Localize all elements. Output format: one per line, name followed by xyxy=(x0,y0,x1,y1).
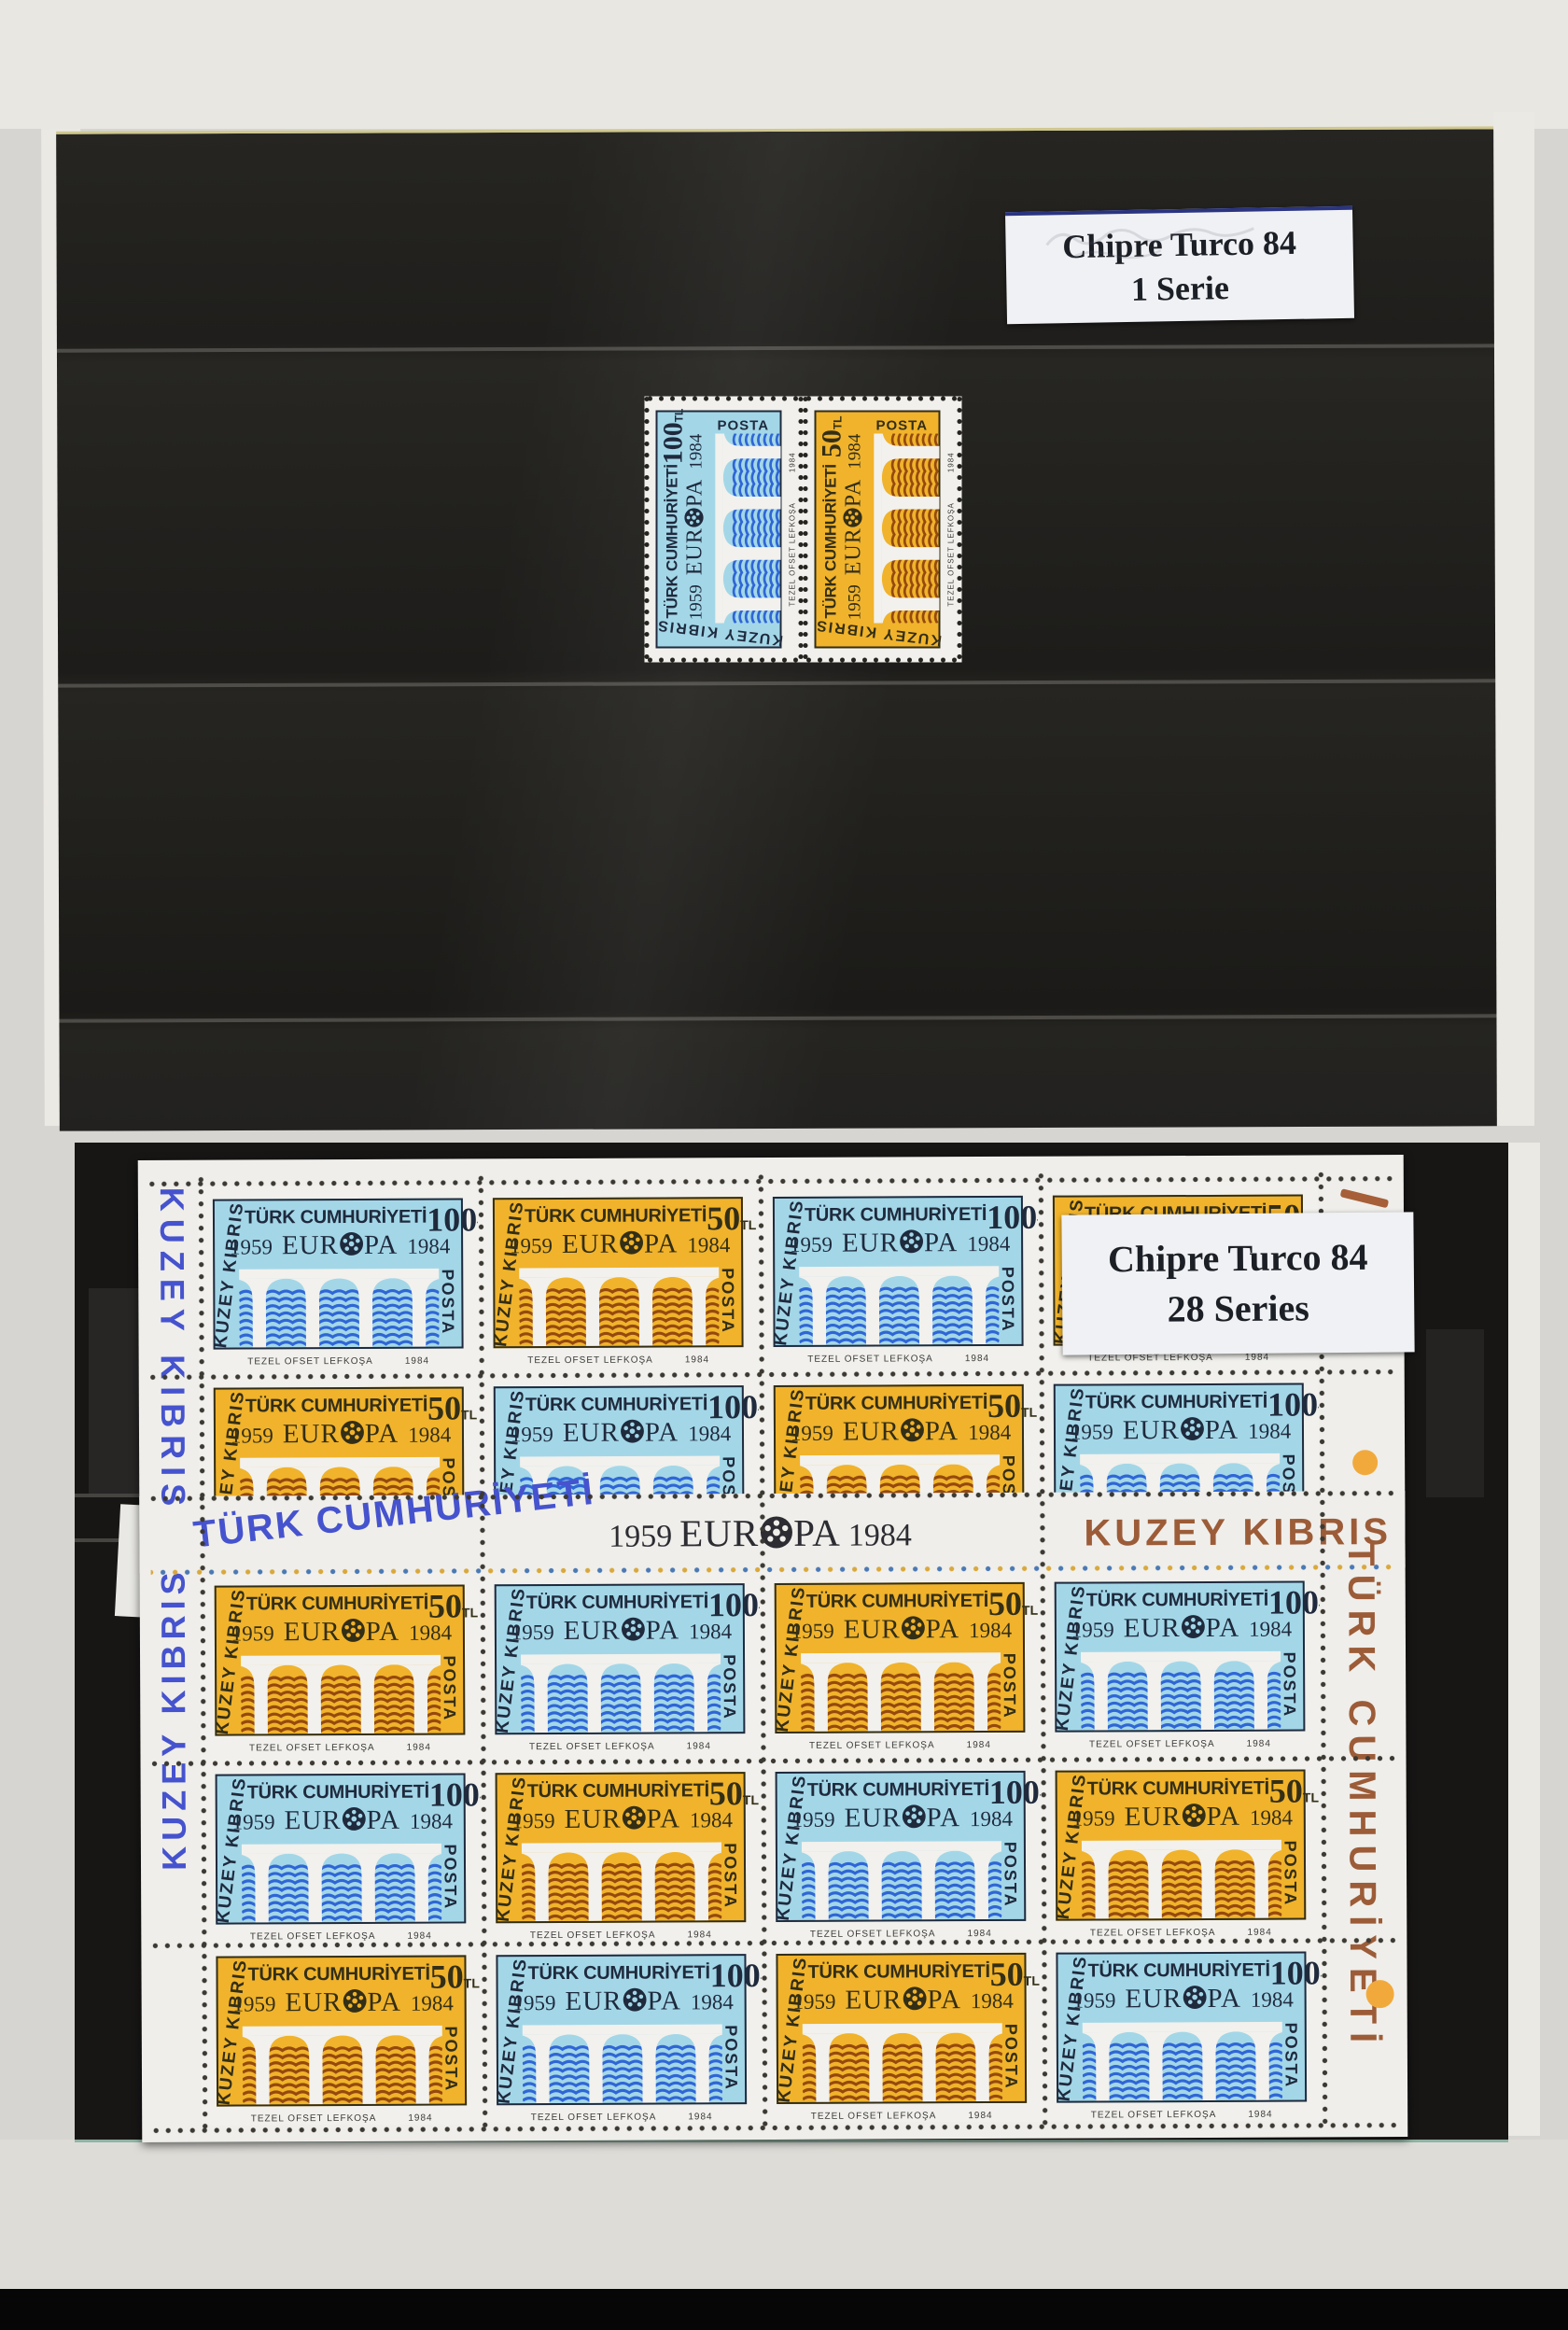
postage-stamp-orange: KUZEY KIBRISTÜRK CUMHURİYETİ50TL1959EURP… xyxy=(201,1942,482,2125)
sheet-stamp-cell: KUZEY KIBRISTÜRK CUMHURİYETİ50TL1959EURP… xyxy=(200,1571,481,1761)
stamp-europa-line: 1959EURPA1984 xyxy=(1084,1415,1278,1446)
bridge-water-art xyxy=(241,1647,441,1734)
stamp-year-left: 1959 xyxy=(511,1621,554,1645)
stamp-year-left: 1959 xyxy=(512,1809,555,1833)
stamp-europa-word: EURPA xyxy=(565,1804,681,1835)
stamp-europa-word: EURPA xyxy=(283,1419,399,1451)
bridge-water-art xyxy=(801,1644,1001,1732)
stamp-artwork xyxy=(1082,1832,1281,1919)
collection-label-top: Chipre Turco 84 1 Serie xyxy=(1005,206,1354,324)
stamp-year-right: 1984 xyxy=(967,1232,1010,1256)
imprint-year: 1984 xyxy=(687,1741,711,1751)
stamp-europa-word: EURPA xyxy=(845,1803,961,1834)
stamp-europa-line: 1959EURPA1984 xyxy=(523,1228,717,1259)
cept-emblem-icon xyxy=(339,1231,364,1256)
stamp-posta-text: POSTA xyxy=(995,1257,1019,1341)
sheet-stamp-cell: KUZEY KIBRISTÜRK CUMHURİYETİ50TL1959EURP… xyxy=(201,1942,482,2125)
stamp-panel: KUZEY KIBRISTÜRK CUMHURİYETİ100TL1959EUR… xyxy=(1055,1581,1306,1733)
stamp-year-right: 1984 xyxy=(408,1424,451,1448)
cept-emblem-icon xyxy=(342,1988,367,2014)
stamp-country-text: TÜRK CUMHURİYETİ xyxy=(245,1393,427,1418)
gutter-year-left: 1959 xyxy=(609,1519,672,1554)
stamp-year-right: 1984 xyxy=(846,434,866,470)
stamp-panel: KUZEY KIBRISTÜRK CUMHURİYETİ50TL1959EURP… xyxy=(776,1953,1027,2104)
stamp-imprint: TEZEL OFSET LEFKOŞA1984 xyxy=(947,397,956,663)
stamp-unit: TL xyxy=(1022,1603,1038,1618)
bridge-water-art xyxy=(522,1833,721,1921)
stamp-country-text: TÜRK CUMHURİYETİ xyxy=(527,1777,709,1803)
bridge-water-art xyxy=(867,433,940,623)
label-line2: 1 Serie xyxy=(1131,266,1230,312)
stamp-title-line: TÜRK CUMHURİYETİ100TL xyxy=(805,1201,1017,1230)
left-margin-inscription-lower: KUZEY KIBRIS xyxy=(151,1582,197,1855)
stamp-unit: TL xyxy=(462,1606,478,1621)
stamp-country-text: TÜRK CUMHURİYETİ xyxy=(525,1202,707,1228)
perforation-edge xyxy=(957,397,963,663)
stamp-panel: KUZEY KIBRISTÜRK CUMHURİYETİ50TL1959EURP… xyxy=(493,1197,744,1348)
stamp-country-text: TÜRK CUMHURİYETİ xyxy=(246,1591,428,1616)
stamp-year-left: 1959 xyxy=(792,1990,835,2014)
bridge-water-art xyxy=(708,433,781,623)
postage-stamp-blue: KUZEY KIBRISTÜRK CUMHURİYETİ100TL1959EUR… xyxy=(1040,1567,1321,1757)
imprint-printer: TEZEL OFSET LEFKOŞA xyxy=(249,1743,375,1754)
stamp-country-text: TÜRK CUMHURİYETİ xyxy=(1086,1587,1268,1612)
postage-stamp-blue: KUZEY KIBRISTÜRK CUMHURİYETİ100TL1959EUR… xyxy=(645,397,804,663)
stamp-europa-word: EURPA xyxy=(842,1228,959,1259)
stamp-country-text: TÜRK CUMHURİYETİ xyxy=(1085,1389,1267,1414)
stamp-europa-line: 1959EURPA1984 xyxy=(803,1228,997,1258)
stamp-title-line: TÜRK CUMHURİYETİ50TL xyxy=(806,1588,1019,1617)
stamp-europa-word: EURPA xyxy=(843,1416,959,1448)
stamp-europa-word: EURPA xyxy=(1125,1984,1241,2015)
stamp-title-line: TÜRK CUMHURİYETİ50TL xyxy=(245,1392,458,1421)
perforation-edge xyxy=(803,397,809,663)
stamp-europa-word: EURPA xyxy=(284,1617,400,1649)
bridge-water-art xyxy=(521,1645,721,1733)
sheet-stamp-cell: KUZEY KIBRISTÜRK CUMHURİYETİ50TL1959EURP… xyxy=(481,1759,762,1942)
stamp-year-right: 1984 xyxy=(687,434,707,470)
color-control-dot xyxy=(1366,1980,1394,2008)
bridge-water-art xyxy=(523,2015,722,2103)
bridge-water-art xyxy=(242,1835,441,1923)
stamp-panel: KUZEY KIBRISTÜRK CUMHURİYETİ100TL1959EUR… xyxy=(213,1198,464,1349)
stamp-imprint: TEZEL OFSET LEFKOŞA1984 xyxy=(480,1741,760,1752)
postage-stamp-blue: KUZEY KIBRISTÜRK CUMHURİYETİ100TL1959EUR… xyxy=(201,1760,482,1943)
stamp-title-line: TÜRK CUMHURİYETİ50TL xyxy=(527,1777,740,1806)
stamp-posta-text: POSTA xyxy=(718,1833,742,1917)
stamp-title-line: TÜRK CUMHURİYETİ100TL xyxy=(1085,1389,1298,1418)
stamp-country-text: TÜRK CUMHURİYETİ xyxy=(1087,1958,1269,1983)
postage-stamp-orange: KUZEY KIBRISTÜRK CUMHURİYETİ50TL1959EURP… xyxy=(478,1184,759,1373)
stamp-year-right: 1984 xyxy=(968,1421,1011,1445)
stamp-country-text: TÜRK CUMHURİYETİ xyxy=(805,1390,987,1415)
postage-stamp-blue: KUZEY KIBRISTÜRK CUMHURİYETİ100TL1959EUR… xyxy=(480,1570,761,1760)
stamp-year-right: 1984 xyxy=(690,1808,733,1832)
stamp-title-line: TÜRK CUMHURİYETİ100TL xyxy=(527,1959,740,1988)
postage-stamp-blue: KUZEY KIBRISTÜRK CUMHURİYETİ100TL1959EUR… xyxy=(1041,1938,1322,2121)
stamp-posta-text: POSTA xyxy=(719,2015,743,2099)
stamp-europa-word: EURPA xyxy=(285,1987,401,2019)
stamp-year-left: 1959 xyxy=(791,1620,834,1644)
stamp-europa-line: 1959EURPA1984 xyxy=(804,1416,998,1447)
stamp-year-left: 1959 xyxy=(231,1621,274,1646)
stamp-title-line: TÜRK CUMHURİYETİ100TL xyxy=(245,1203,457,1232)
stamp-europa-line: 1959EURPA1984 xyxy=(683,435,708,620)
stamp-imprint: TEZEL OFSET LEFKOŞA1984 xyxy=(762,2111,1042,2122)
stamp-year-left: 1959 xyxy=(687,584,707,620)
imprint-printer: TEZEL OFSET LEFKOŞA xyxy=(1090,1928,1216,1939)
stamp-country-text: TÜRK CUMHURİYETİ xyxy=(247,1961,429,1986)
stamp-posta-text: POSTA xyxy=(717,1645,741,1729)
bridge-water-art xyxy=(799,1257,999,1345)
stamp-year-left: 1959 xyxy=(1072,1988,1115,2013)
stamp-posta-text: POSTA xyxy=(439,2016,463,2100)
stamp-europa-line: 1959EURPA1984 xyxy=(524,1417,718,1448)
imprint-printer: TEZEL OFSET LEFKOŞA xyxy=(250,1931,376,1943)
stamp-panel: KUZEY KIBRISTÜRK CUMHURİYETİ50TL1959EURP… xyxy=(1056,1770,1307,1921)
stamp-panel: KUZEY KIBRISTÜRK CUMHURİYETİ100TL1959EUR… xyxy=(773,1196,1024,1347)
sheet-stamp-cell: KUZEY KIBRISTÜRK CUMHURİYETİ50TL1959EURP… xyxy=(478,1184,759,1373)
cept-emblem-icon xyxy=(902,1804,927,1829)
sheet-stamp-cell: KUZEY KIBRISTÜRK CUMHURİYETİ100TL1959EUR… xyxy=(758,1183,1039,1372)
bridge-water-art xyxy=(1082,1832,1281,1919)
sheet-stamp-cell: KUZEY KIBRISTÜRK CUMHURİYETİ50TL1959EURP… xyxy=(760,1569,1041,1759)
stamp-europa-line: 1959EURPA1984 xyxy=(245,1617,439,1648)
stamp-imprint: TEZEL OFSET LEFKOŞA1984 xyxy=(199,1355,479,1367)
sheet-stamp-cell: KUZEY KIBRISTÜRK CUMHURİYETİ50TL1959EURP… xyxy=(1041,1756,1322,1939)
stamp-year-left: 1959 xyxy=(512,1991,555,2015)
stamp-posta-text: POSTA xyxy=(708,414,779,438)
sheet-stamp-cell: KUZEY KIBRISTÜRK CUMHURİYETİ100TL1959EUR… xyxy=(761,1758,1042,1941)
stamp-posta-text: POSTA xyxy=(715,1258,739,1342)
label-line1: Chipre Turco 84 xyxy=(1108,1232,1368,1284)
cept-emblem-icon xyxy=(902,1986,927,2011)
imprint-printer: TEZEL OFSET LEFKOŞA xyxy=(811,2111,937,2122)
pocket-reflection xyxy=(89,1288,140,1494)
stamp-year-left: 1959 xyxy=(1071,1618,1114,1642)
stamp-posta-text: POSTA xyxy=(437,1646,461,1730)
gutter-year-right: 1984 xyxy=(848,1518,912,1553)
stamp-europa-word: EURPA xyxy=(563,1417,679,1449)
stamp-imprint: TEZEL OFSET LEFKOŞA1984 xyxy=(759,1354,1039,1365)
imprint-printer: TEZEL OFSET LEFKOŞA xyxy=(947,502,956,606)
bridge-water-art xyxy=(803,2014,1002,2102)
sheet-gutter: TÜRK CUMHURİYETİ1959EURPA1984KUZEY KIBRI… xyxy=(139,1491,1405,1573)
stamp-artwork xyxy=(239,1260,439,1348)
perforation-edge xyxy=(645,396,804,402)
stamp-panel: KUZEY KIBRISTÜRK CUMHURİYETİ50TL1959EURP… xyxy=(496,1772,747,1923)
postage-stamp-orange: KUZEY KIBRISTÜRK CUMHURİYETİ50TL1959EURP… xyxy=(761,1940,1042,2123)
cept-emblem-icon xyxy=(1182,1985,1207,2010)
stamp-country-text: TÜRK CUMHURİYETİ xyxy=(819,464,841,618)
postage-stamp-orange: KUZEY KIBRISTÜRK CUMHURİYETİ50TL1959EURP… xyxy=(481,1759,762,1942)
corner-registration-mark xyxy=(1340,1188,1390,1208)
stamp-country-text: TÜRK CUMHURİYETİ xyxy=(527,1959,709,1985)
cept-emblem-icon xyxy=(340,1420,365,1445)
stamp-year-left: 1959 xyxy=(232,1992,275,2016)
stamp-posta-text: POSTA xyxy=(867,414,938,438)
imprint-year: 1984 xyxy=(1248,2110,1272,2120)
stamp-europa-word: EURPA xyxy=(282,1230,399,1262)
stamp-panel: KUZEY KIBRISTÜRK CUMHURİYETİ100TL1959EUR… xyxy=(496,1954,747,2105)
stamp-imprint: TEZEL OFSET LEFKOŞA1984 xyxy=(482,2112,762,2123)
stamp-year-right: 1984 xyxy=(687,1233,730,1257)
stamp-title-line: TÜRK CUMHURİYETİ100TL xyxy=(661,416,684,619)
sheet-stamp-cell: KUZEY KIBRISTÜRK CUMHURİYETİ100TL1959EUR… xyxy=(198,1185,479,1374)
stamp-posta-text: POSTA xyxy=(997,1644,1021,1728)
stamp-artwork xyxy=(803,2014,1002,2102)
cept-emblem-icon xyxy=(1181,1614,1206,1639)
stamp-unit: TL xyxy=(743,1792,759,1807)
stamp-imprint: TEZEL OFSET LEFKOŞA1984 xyxy=(1042,2109,1322,2120)
imprint-year: 1984 xyxy=(789,452,797,472)
backdrop-bottom-band xyxy=(0,2140,1568,2289)
postage-stamp-blue: KUZEY KIBRISTÜRK CUMHURİYETİ100TL1959EUR… xyxy=(198,1185,479,1374)
sheet-stamp-cell: KUZEY KIBRISTÜRK CUMHURİYETİ50TL1959EURP… xyxy=(761,1940,1042,2123)
stamp-unit: TL xyxy=(740,1217,756,1232)
cept-emblem-icon xyxy=(684,507,705,527)
stamp-unit: TL xyxy=(461,1408,477,1423)
stamp-year-left: 1959 xyxy=(791,1422,833,1446)
sheet-stamp-cell: KUZEY KIBRISTÜRK CUMHURİYETİ100TL1959EUR… xyxy=(1041,1938,1322,2121)
stamp-europa-line: 1959EURPA1984 xyxy=(245,1805,440,1836)
imprint-printer: TEZEL OFSET LEFKOŞA xyxy=(789,502,797,606)
collection-label-bottom: Chipre Turco 84 28 Series xyxy=(1061,1212,1414,1354)
perforation-edge xyxy=(804,657,962,664)
stamp-imprint: TEZEL OFSET LEFKOŞA1984 xyxy=(1040,1738,1320,1749)
perforation-edge xyxy=(645,657,804,664)
stamp-year-left: 1959 xyxy=(1072,1806,1115,1831)
color-control-dot xyxy=(1352,1450,1378,1475)
stamp-europa-line: 1959EURPA1984 xyxy=(1086,1984,1281,2014)
stamp-title-line: TÜRK CUMHURİYETİ50TL xyxy=(807,1958,1020,1987)
stamp-title-line: TÜRK CUMHURİYETİ100TL xyxy=(1086,1587,1299,1616)
stamp-artwork xyxy=(799,1257,999,1345)
stamp-europa-word: EURPA xyxy=(562,1228,679,1260)
stamp-imprint: TEZEL OFSET LEFKOŞA1984 xyxy=(760,1740,1040,1751)
stamp-europa-line: 1959EURPA1984 xyxy=(525,1804,720,1834)
cept-emblem-icon xyxy=(622,1987,647,2013)
stamp-artwork xyxy=(801,1644,1001,1732)
imprint-printer: TEZEL OFSET LEFKOŞA xyxy=(531,2112,657,2124)
stamp-panel: KUZEY KIBRISTÜRK CUMHURİYETİ100TL1959EUR… xyxy=(495,1583,746,1734)
imprint-printer: TEZEL OFSET LEFKOŞA xyxy=(1091,2110,1217,2121)
stamp-imprint: TEZEL OFSET LEFKOŞA1984 xyxy=(789,397,797,663)
imprint-printer: TEZEL OFSET LEFKOŞA xyxy=(809,1740,935,1751)
stamp-artwork xyxy=(242,1835,441,1923)
bridge-water-art xyxy=(1083,2014,1282,2101)
bridge-water-art xyxy=(243,2017,442,2105)
postage-stamp-blue: KUZEY KIBRISTÜRK CUMHURİYETİ100TL1959EUR… xyxy=(758,1183,1039,1372)
stamp-year-right: 1984 xyxy=(689,1620,732,1644)
stamp-year-right: 1984 xyxy=(688,1422,731,1446)
stamp-year-right: 1984 xyxy=(1249,1618,1292,1642)
stamp-europa-line: 1959EURPA1984 xyxy=(1085,1802,1280,1832)
postage-stamp-blue: KUZEY KIBRISTÜRK CUMHURİYETİ100TL1959EUR… xyxy=(481,1941,762,2124)
stamp-year-right: 1984 xyxy=(969,1619,1012,1643)
stamp-posta-text: POSTA xyxy=(1278,1832,1302,1916)
stamp-posta-text: POSTA xyxy=(1277,1643,1301,1727)
stamp-country-text: TÜRK CUMHURİYETİ xyxy=(525,1391,707,1416)
stamp-title-line: TÜRK CUMHURİYETİ50TL xyxy=(246,1590,459,1619)
stamp-europa-line: 1959EURPA1984 xyxy=(244,1419,438,1450)
stamp-panel: KUZEY KIBRISTÜRK CUMHURİYETİ50TL1959EURP… xyxy=(216,1955,467,2106)
stamp-europa-line: 1959EURPA1984 xyxy=(806,1985,1001,2015)
sheet-stamp-cell: KUZEY KIBRISTÜRK CUMHURİYETİ100TL1959EUR… xyxy=(481,1941,762,2124)
stamp-europa-word: EURPA xyxy=(1125,1802,1241,1833)
stamp-imprint: TEZEL OFSET LEFKOŞA1984 xyxy=(479,1354,759,1366)
pocket-seam xyxy=(75,1494,140,1497)
cept-emblem-icon xyxy=(900,1417,925,1442)
stamp-artwork xyxy=(243,2017,442,2105)
imprint-printer: TEZEL OFSET LEFKOŞA xyxy=(247,1356,373,1368)
imprint-printer: TEZEL OFSET LEFKOŞA xyxy=(251,2113,377,2125)
imprint-year: 1984 xyxy=(968,2111,992,2121)
stamp-europa-line: 1959EURPA1984 xyxy=(525,1615,719,1646)
stamp-artwork xyxy=(708,434,781,624)
stamp-europa-line: 1959EURPA1984 xyxy=(243,1230,437,1261)
imprint-year: 1984 xyxy=(965,1354,989,1364)
photo-canvas: KUZEY KIBRISTÜRK CUMHURİYETİ100TL1959EUR… xyxy=(0,0,1568,2330)
stamp-artwork xyxy=(867,434,940,624)
imprint-printer: TEZEL OFSET LEFKOŞA xyxy=(530,1930,656,1942)
stamp-year-left: 1959 xyxy=(231,1424,273,1448)
imprint-year: 1984 xyxy=(407,1931,431,1942)
stamp-unit: TL xyxy=(831,416,844,430)
stamp-year-left: 1959 xyxy=(230,1235,273,1259)
stamp-title-line: TÜRK CUMHURİYETİ50TL xyxy=(247,1960,460,1989)
cept-emblem-icon xyxy=(619,1230,644,1256)
stamp-unit: TL xyxy=(672,409,685,423)
stamp-unit: TL xyxy=(1021,1405,1037,1420)
imprint-year: 1984 xyxy=(687,1930,711,1940)
stamp-artwork xyxy=(241,1647,441,1734)
stamp-year-right: 1984 xyxy=(1248,1420,1291,1444)
stamp-imprint: TEZEL OFSET LEFKOŞA1984 xyxy=(200,1742,480,1753)
stamp-unit: TL xyxy=(464,1976,480,1991)
imprint-year: 1984 xyxy=(405,1356,429,1367)
stamp-year-right: 1984 xyxy=(411,1991,454,2015)
stamp-artwork xyxy=(523,2015,722,2103)
stamp-europa-word: EURPA xyxy=(564,1615,680,1647)
stamp-europa-line: 1959EURPA1984 xyxy=(246,1987,441,2018)
album-page-edge-right-top xyxy=(1493,112,1534,1126)
stamp-panel: KUZEY KIBRISTÜRK CUMHURİYETİ50TL1959EURP… xyxy=(215,1584,466,1735)
stamp-year-right: 1984 xyxy=(1251,1988,1294,2013)
imprint-printer: TEZEL OFSET LEFKOŞA xyxy=(807,1354,933,1365)
perforation-edge xyxy=(644,397,651,663)
stamp-europa-word: EURPA xyxy=(683,479,708,575)
stamp-panel: KUZEY KIBRISTÜRK CUMHURİYETİ100TL1959EUR… xyxy=(1056,1952,1307,2103)
stamp-title-line: TÜRK CUMHURİYETİ50TL xyxy=(805,1390,1018,1419)
postage-stamp-orange: KUZEY KIBRISTÜRK CUMHURİYETİ50TL1959EURP… xyxy=(1041,1756,1322,1939)
photo-black-bar xyxy=(0,2289,1568,2330)
stamp-europa-word: EURPA xyxy=(565,1986,681,2017)
imprint-year: 1984 xyxy=(967,1740,991,1750)
stamp-country-text: TÜRK CUMHURİYETİ xyxy=(245,1204,427,1229)
imprint-printer: TEZEL OFSET LEFKOŞA xyxy=(1089,1739,1215,1750)
stamp-europa-word: EURPA xyxy=(285,1805,401,1837)
stamp-title-line: TÜRK CUMHURİYETİ50TL xyxy=(525,1202,737,1231)
stamp-year-left: 1959 xyxy=(510,1234,553,1258)
stamp-panel: KUZEY KIBRISTÜRK CUMHURİYETİ100TL1959EUR… xyxy=(216,1773,467,1924)
cept-emblem-icon xyxy=(901,1615,926,1640)
postage-stamp-blue: KUZEY KIBRISTÜRK CUMHURİYETİ100TL1959EUR… xyxy=(761,1758,1042,1941)
stamp-panel: KUZEY KIBRISTÜRK CUMHURİYETİ50TL1959EURP… xyxy=(815,411,941,649)
stamp-country-text: TÜRK CUMHURİYETİ xyxy=(805,1201,987,1227)
cept-emblem-icon xyxy=(622,1805,647,1831)
stamp-europa-word: EURPA xyxy=(1124,1613,1240,1645)
stamp-artwork xyxy=(1083,2014,1282,2101)
label-line2: 28 Series xyxy=(1167,1283,1309,1334)
sheet-stamp-cell: KUZEY KIBRISTÜRK CUMHURİYETİ100TL1959EUR… xyxy=(480,1570,761,1760)
stamp-country-text: TÜRK CUMHURİYETİ xyxy=(807,1776,989,1802)
bridge-water-art xyxy=(239,1260,439,1348)
stamp-title-line: TÜRK CUMHURİYETİ50TL xyxy=(1087,1776,1300,1804)
stamp-pair: KUZEY KIBRISTÜRK CUMHURİYETİ100TL1959EUR… xyxy=(645,397,962,663)
imprint-year: 1984 xyxy=(407,1743,431,1753)
stamp-year-right: 1984 xyxy=(1250,1806,1293,1831)
stamp-year-right: 1984 xyxy=(691,1990,734,2014)
stamp-panel: KUZEY KIBRISTÜRK CUMHURİYETİ100TL1959EUR… xyxy=(776,1771,1027,1922)
stamp-year-left: 1959 xyxy=(792,1808,835,1832)
imprint-printer: TEZEL OFSET LEFKOŞA xyxy=(527,1355,653,1367)
cept-emblem-icon xyxy=(341,1618,366,1643)
cept-emblem-icon xyxy=(1182,1803,1207,1828)
label-line1: Chipre Turco 84 xyxy=(1062,221,1297,269)
imprint-year: 1984 xyxy=(947,452,956,472)
stamp-posta-text: POSTA xyxy=(1279,2014,1303,2098)
stamp-year-right: 1984 xyxy=(407,1235,450,1259)
bridge-water-art xyxy=(1081,1643,1281,1731)
bridge-water-art xyxy=(802,1832,1001,1920)
stamp-posta-text: POSTA xyxy=(999,2014,1023,2098)
stamp-europa-line: 1959EURPA1984 xyxy=(805,1803,1000,1833)
stamp-europa-word: EURPA xyxy=(845,1985,961,2016)
stamp-posta-text: POSTA xyxy=(438,1834,462,1918)
stamp-posta-text: POSTA xyxy=(998,1832,1022,1916)
stamp-europa-line: 1959EURPA1984 xyxy=(526,1986,721,2016)
cept-emblem-icon xyxy=(342,1806,367,1832)
stamp-posta-text: POSTA xyxy=(435,1259,459,1343)
stamp-country-text: TÜRK CUMHURİYETİ xyxy=(661,464,682,618)
stamp-imprint: TEZEL OFSET LEFKOŞA1984 xyxy=(202,2112,482,2124)
postage-stamp-orange: KUZEY KIBRISTÜRK CUMHURİYETİ50TL1959EURP… xyxy=(760,1569,1041,1759)
stamp-year-left: 1959 xyxy=(511,1423,553,1447)
stamp-europa-line: 1959EURPA1984 xyxy=(805,1614,999,1645)
stamp-title-line: TÜRK CUMHURİYETİ100TL xyxy=(526,1589,739,1618)
stamp-title-line: TÜRK CUMHURİYETİ100TL xyxy=(525,1391,738,1420)
stamp-artwork xyxy=(521,1645,721,1733)
stamp-unit: TL xyxy=(1024,1973,1040,1988)
stamp-year-right: 1984 xyxy=(970,1807,1013,1832)
sheet-stamp-cell: KUZEY KIBRISTÜRK CUMHURİYETİ100TL1959EUR… xyxy=(1040,1567,1321,1757)
stamp-unit: TL xyxy=(1303,1790,1319,1805)
stamp-country-text: TÜRK CUMHURİYETİ xyxy=(1087,1776,1269,1801)
imprint-year: 1984 xyxy=(1247,1739,1271,1749)
stamp-country-text: TÜRK CUMHURİYETİ xyxy=(806,1588,988,1613)
postage-stamp-orange: KUZEY KIBRISTÜRK CUMHURİYETİ50TL1959EURP… xyxy=(200,1571,481,1761)
backdrop-top-band xyxy=(0,0,1568,129)
stamp-country-text: TÜRK CUMHURİYETİ xyxy=(526,1589,708,1614)
stamp-europa-word: EURPA xyxy=(842,479,867,575)
left-margin-inscription-upper: KUZEY KIBRIS xyxy=(149,1205,195,1496)
stamp-panel: KUZEY KIBRISTÜRK CUMHURİYETİ50TL1959EURP… xyxy=(775,1582,1026,1733)
stamp-country-text: TÜRK CUMHURİYETİ xyxy=(807,1958,989,1984)
cept-emblem-icon xyxy=(620,1419,645,1444)
stamp-artwork xyxy=(802,1832,1001,1920)
stamp-year-left: 1959 xyxy=(232,1810,275,1834)
